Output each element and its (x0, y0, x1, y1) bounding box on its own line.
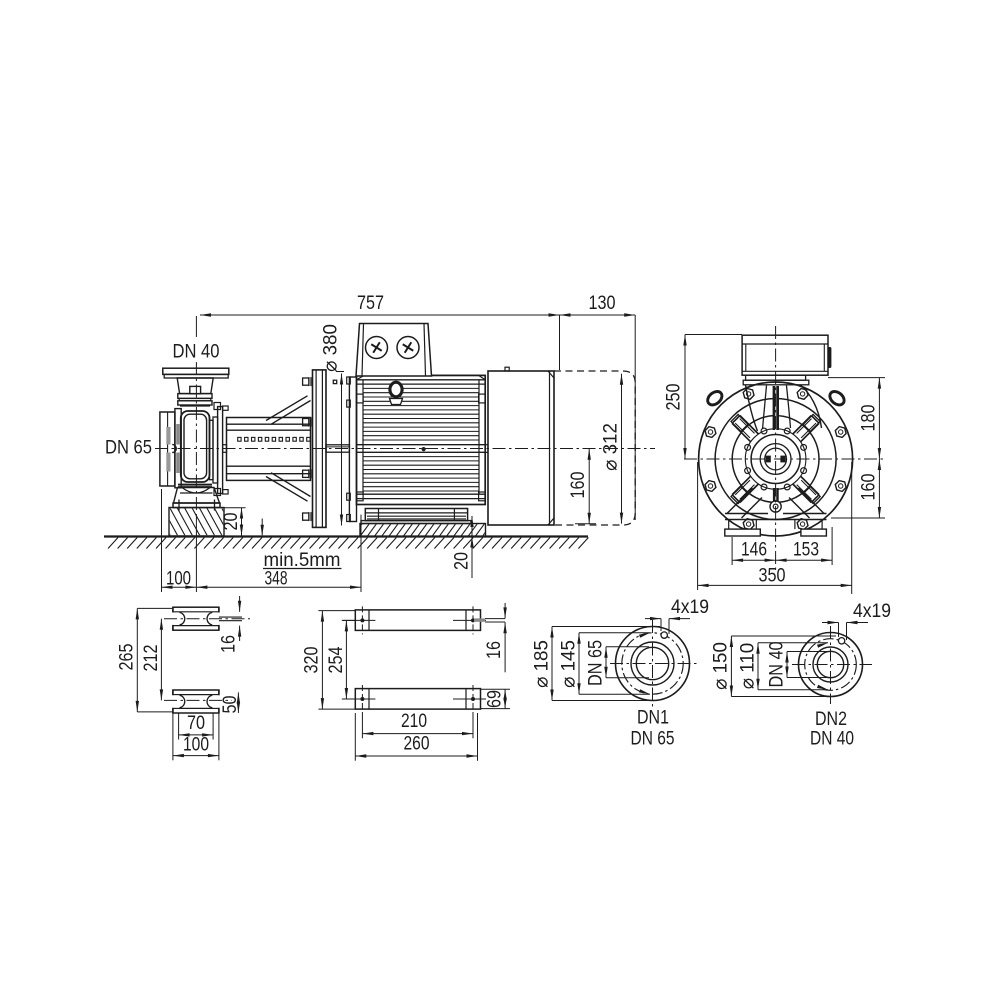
svg-text:⌀ 185: ⌀ 185 (531, 640, 552, 688)
svg-text:100: 100 (166, 567, 191, 589)
svg-text:⌀ 312: ⌀ 312 (600, 423, 621, 471)
svg-text:348: 348 (265, 567, 288, 589)
svg-text:265: 265 (115, 643, 137, 670)
svg-text:DN 65: DN 65 (631, 727, 675, 749)
svg-text:⌀ 380: ⌀ 380 (320, 324, 341, 372)
svg-text:DN 40: DN 40 (765, 641, 787, 687)
svg-text:20: 20 (450, 552, 472, 570)
svg-text:DN 40: DN 40 (810, 727, 854, 749)
svg-text:20: 20 (220, 512, 242, 530)
svg-text:160: 160 (567, 471, 589, 498)
svg-text:DN 65: DN 65 (105, 436, 152, 458)
svg-text:70: 70 (187, 712, 205, 734)
svg-text:180: 180 (857, 404, 879, 431)
svg-text:350: 350 (759, 564, 786, 586)
svg-text:⌀ 145: ⌀ 145 (558, 640, 579, 688)
svg-text:50: 50 (219, 695, 241, 713)
svg-text:⌀ 110: ⌀ 110 (737, 643, 758, 689)
svg-text:320: 320 (300, 646, 322, 673)
svg-text:16: 16 (217, 635, 239, 653)
svg-text:DN 40: DN 40 (173, 340, 220, 362)
svg-text:160: 160 (857, 473, 879, 500)
svg-text:100: 100 (183, 733, 209, 755)
svg-text:16: 16 (483, 641, 505, 659)
svg-text:69: 69 (483, 690, 505, 708)
svg-text:212: 212 (140, 644, 162, 671)
svg-text:146: 146 (741, 538, 767, 560)
svg-text:210: 210 (401, 709, 427, 731)
svg-text:757: 757 (357, 292, 384, 314)
svg-text:130: 130 (589, 292, 616, 314)
svg-text:254: 254 (325, 646, 347, 673)
svg-text:DN1: DN1 (637, 706, 669, 728)
svg-text:4x19: 4x19 (853, 599, 891, 621)
svg-text:260: 260 (404, 732, 430, 754)
svg-text:DN 65: DN 65 (584, 640, 606, 686)
svg-text:153: 153 (793, 538, 819, 560)
svg-text:250: 250 (662, 383, 684, 410)
svg-text:⌀ 150: ⌀ 150 (710, 642, 731, 690)
svg-text:4x19: 4x19 (671, 595, 709, 617)
